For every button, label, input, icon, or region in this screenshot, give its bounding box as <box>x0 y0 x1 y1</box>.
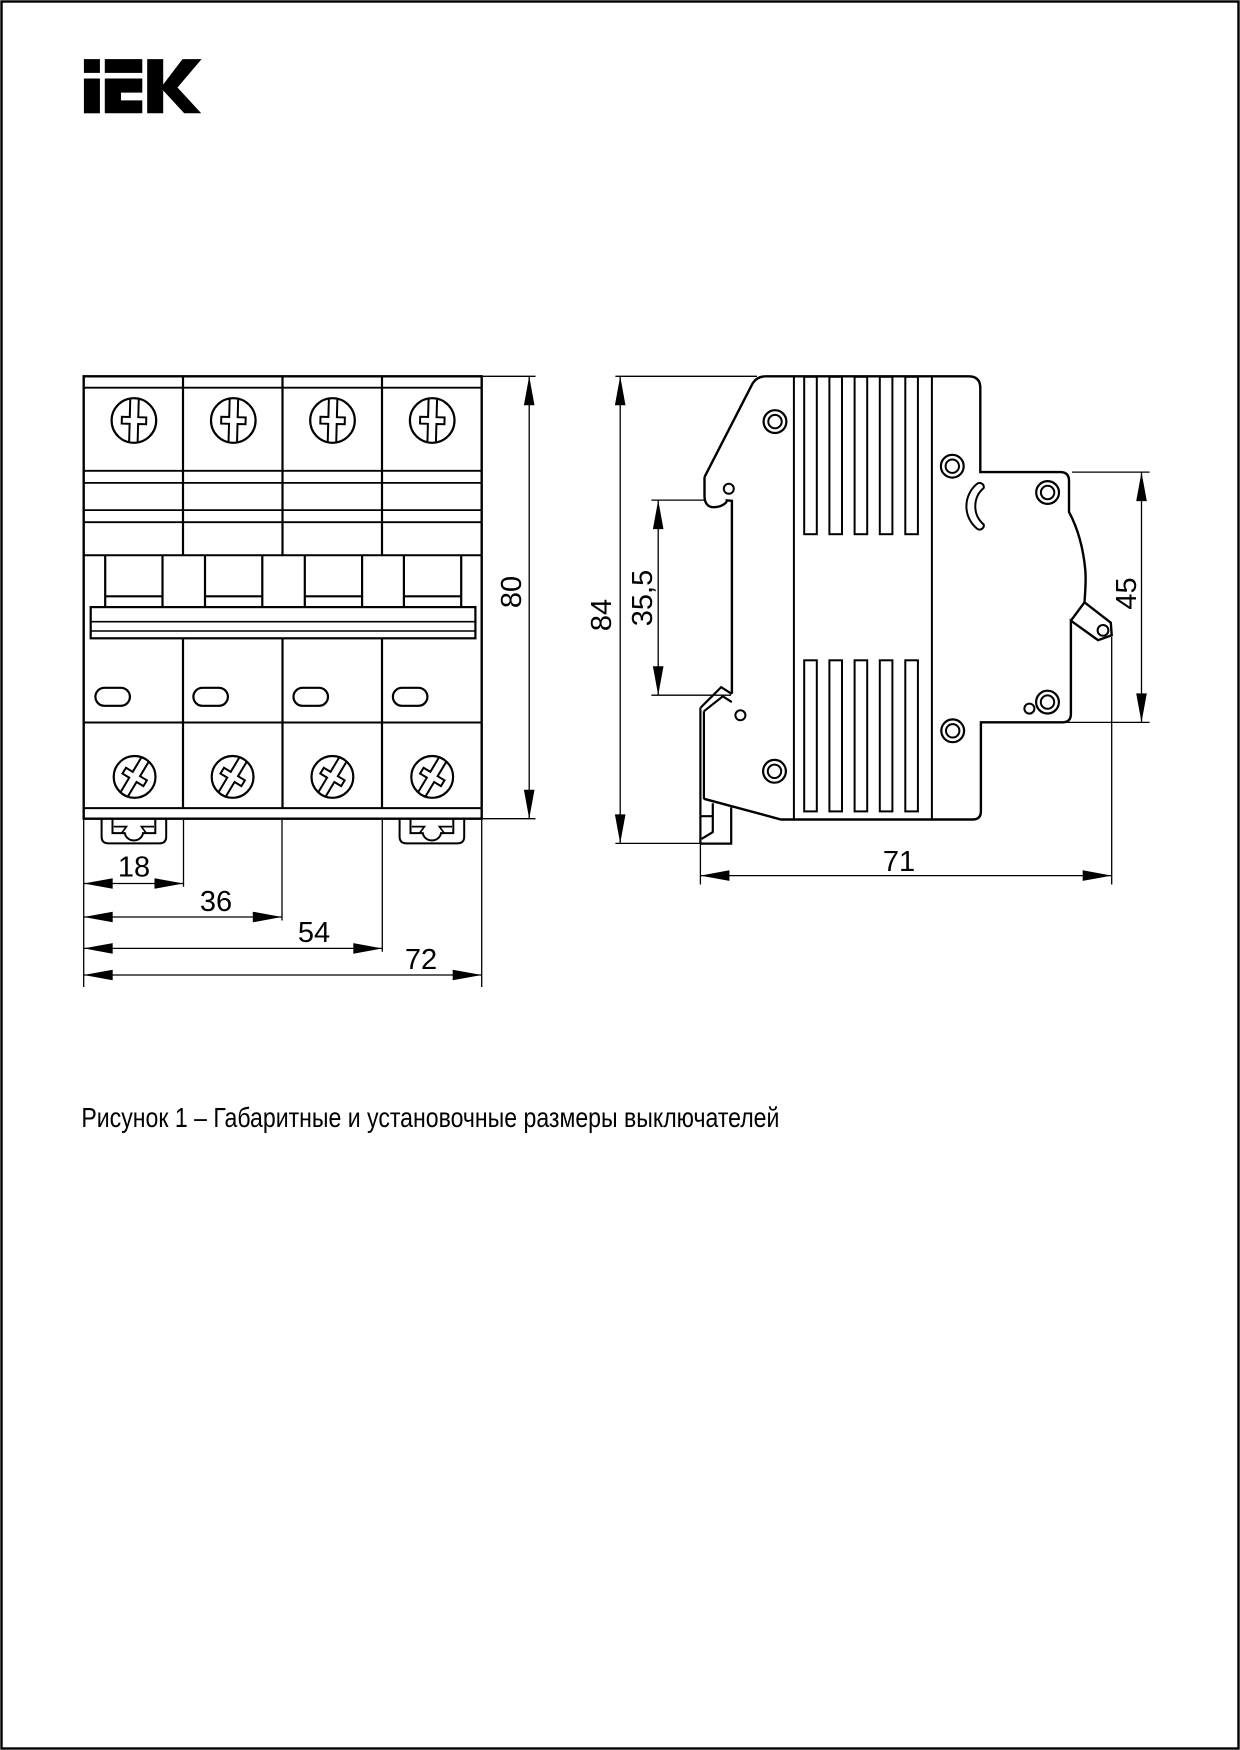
svg-text:72: 72 <box>405 944 437 976</box>
svg-text:71: 71 <box>883 846 915 878</box>
svg-text:45: 45 <box>1111 577 1143 609</box>
svg-text:54: 54 <box>298 917 330 949</box>
svg-text:36: 36 <box>200 886 232 918</box>
svg-text:80: 80 <box>496 576 528 608</box>
svg-text:18: 18 <box>118 852 150 884</box>
svg-text:35,5: 35,5 <box>627 570 659 626</box>
svg-text:Рисунок 1 – Габаритные и устан: Рисунок 1 – Габаритные и установочные ра… <box>81 1102 779 1133</box>
svg-text:84: 84 <box>586 599 618 631</box>
